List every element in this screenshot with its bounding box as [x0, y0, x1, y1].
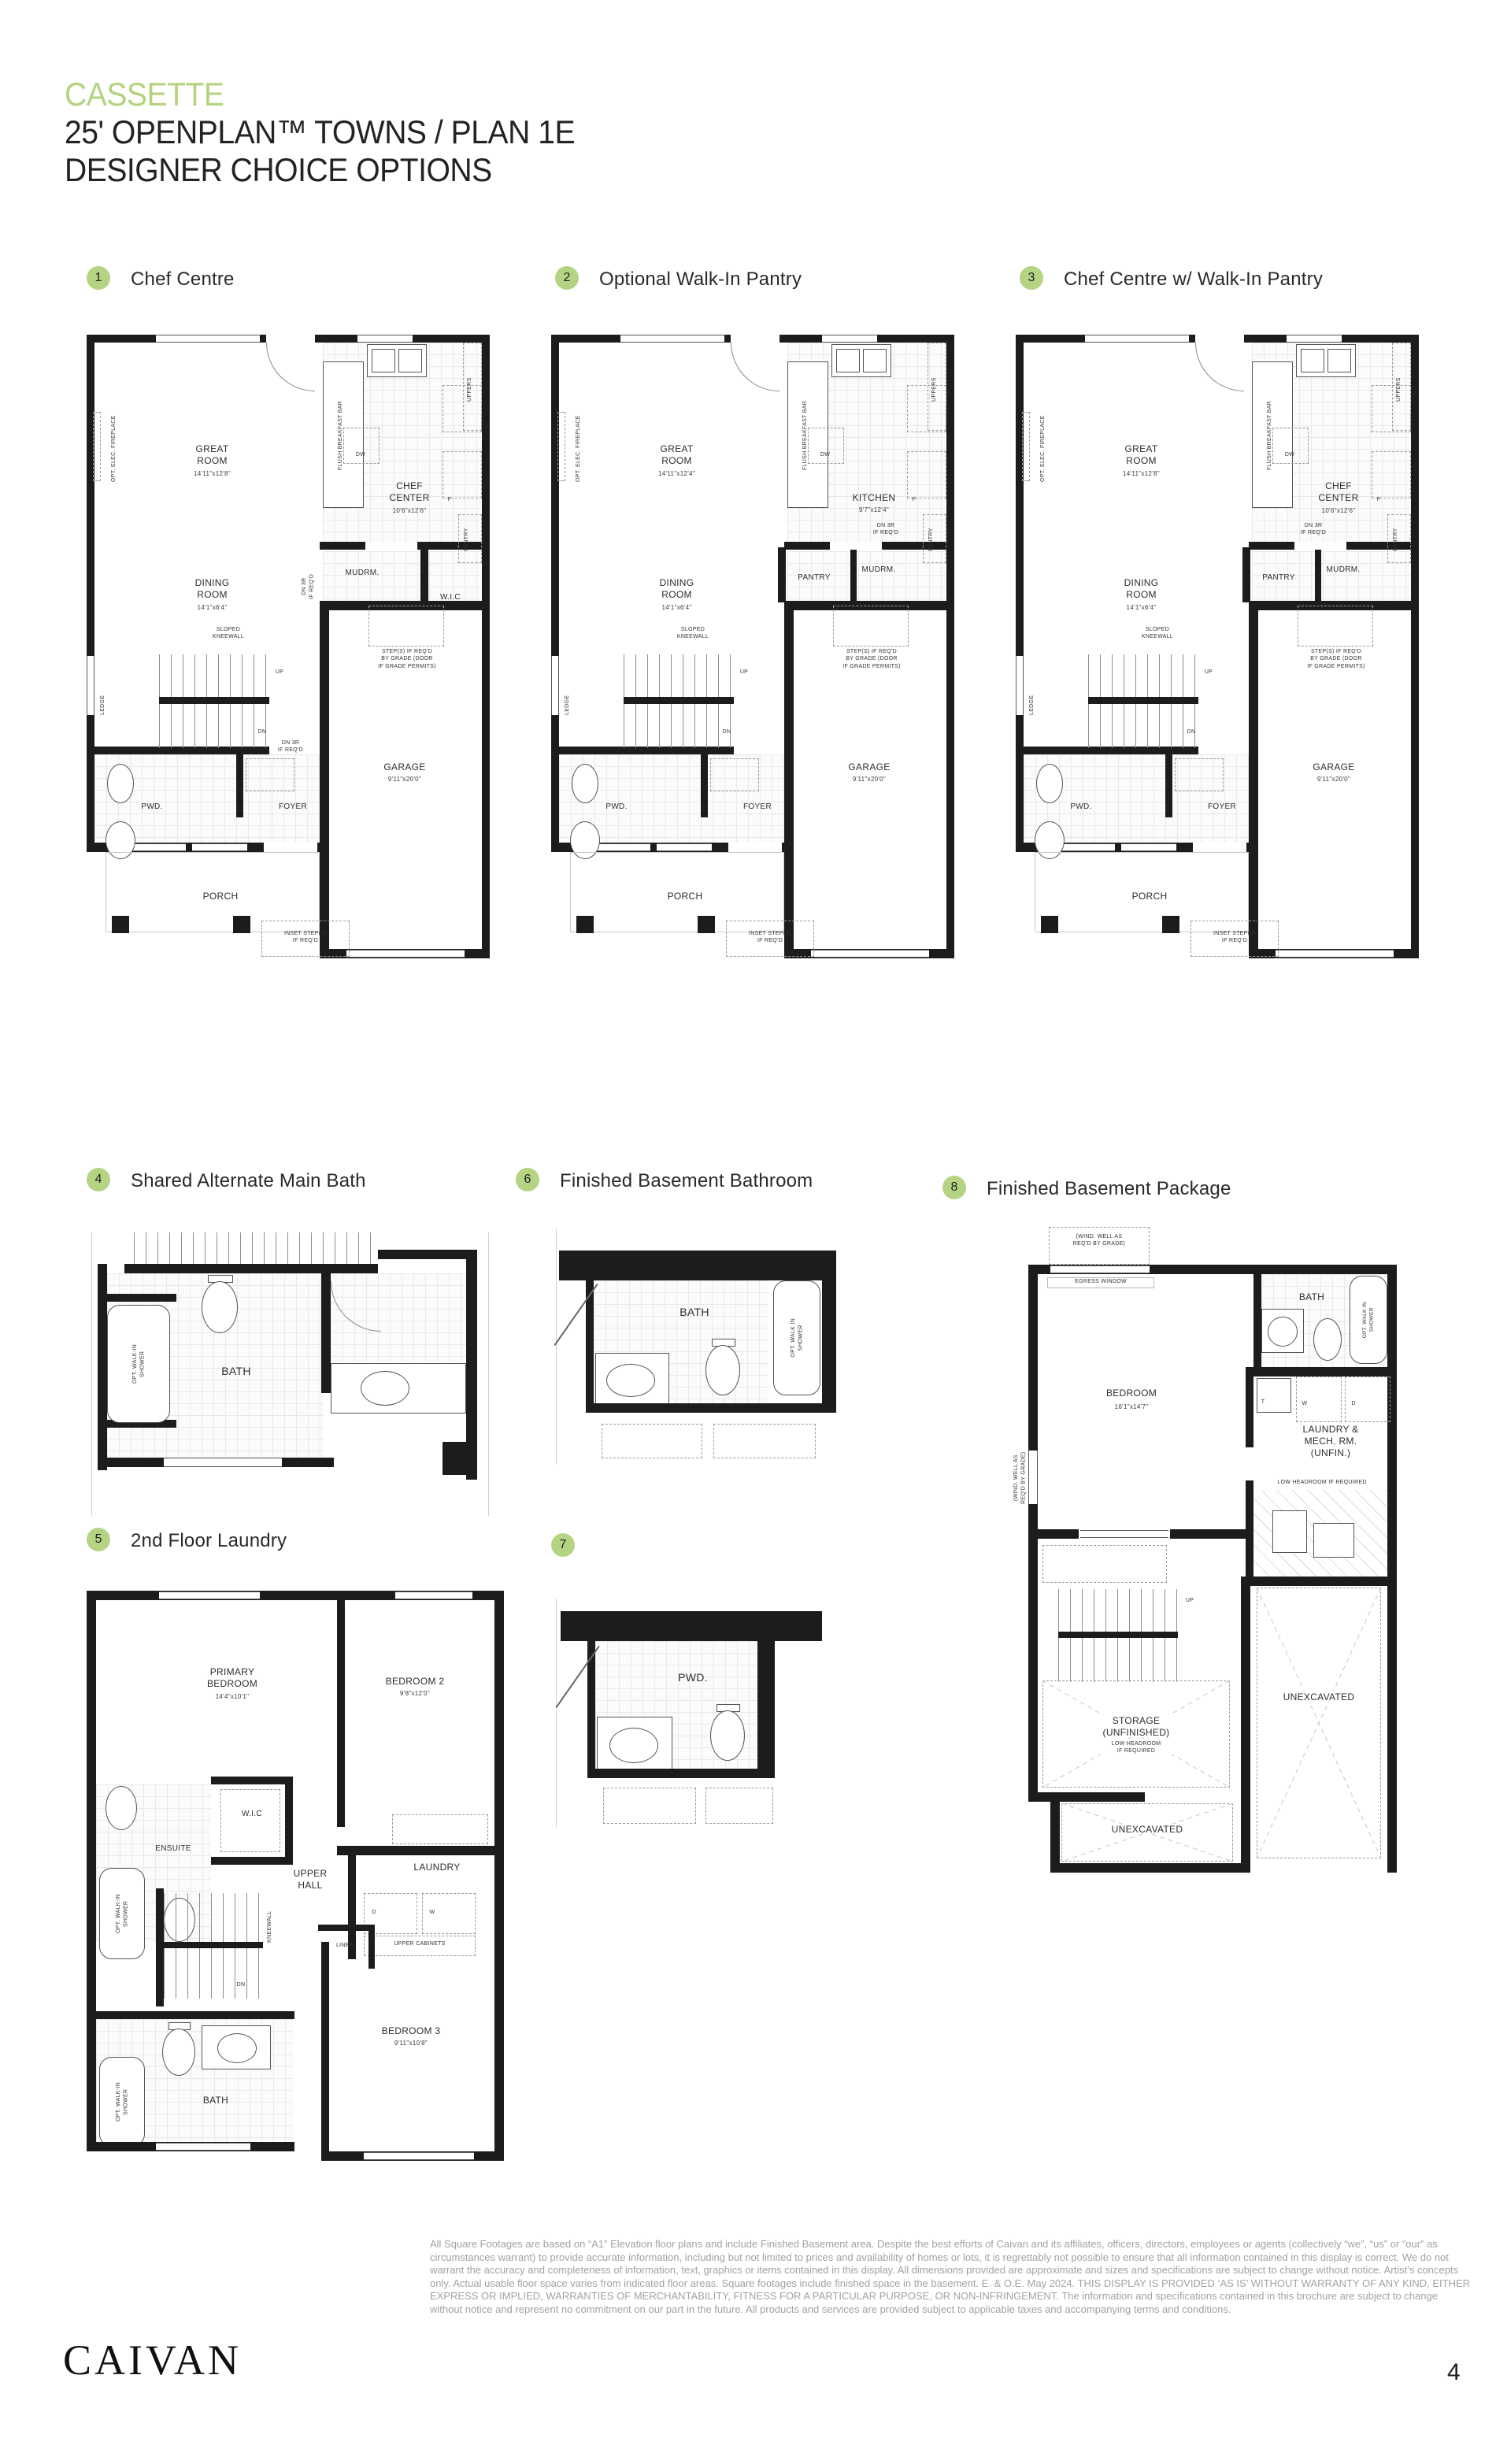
- option-6-number: 6: [524, 1173, 531, 1187]
- toilet-icon: [202, 1281, 238, 1333]
- option-3-label: Chef Centre w/ Walk-In Pantry: [1064, 269, 1323, 291]
- wall: [1165, 754, 1172, 817]
- porch-label: PORCH: [186, 891, 255, 902]
- pantry-room-label: PANTRY: [781, 573, 847, 583]
- upper-hall-label: UPPER HALL: [276, 1868, 345, 1892]
- sink-basin: [1301, 349, 1324, 372]
- garage-dim: 9'11"x20'0": [364, 776, 446, 784]
- dn3r-side-label: DN 3R IF REQ'D: [301, 567, 317, 606]
- option-7-number: 7: [560, 1538, 567, 1552]
- stairs: [134, 1232, 374, 1264]
- wall: [337, 1591, 345, 1827]
- page-subtitle: DESIGNER CHOICE OPTIONS: [65, 151, 492, 189]
- floorplan-basement-package: (WIND. WELL AS REQ'D BY GRADE) EGRESS WI…: [1008, 1221, 1433, 1888]
- sink-icon: [106, 1786, 137, 1830]
- bath-label: BATH: [1282, 1291, 1342, 1302]
- wall: [320, 542, 365, 550]
- toilet-icon: [705, 1345, 740, 1395]
- bedroom2-dim: 9'8"x12'0": [372, 1690, 458, 1698]
- option-2-label: Optional Walk-In Pantry: [599, 269, 802, 291]
- up-label: UP: [737, 669, 751, 676]
- foyer-label: FOYER: [734, 802, 781, 812]
- toilet-icon: [710, 1710, 745, 1761]
- sink-icon: [606, 1364, 655, 1397]
- window: [87, 656, 94, 715]
- shower-label: OPT. WALK IN SHOWER: [1362, 1302, 1376, 1338]
- sink-basin: [836, 349, 860, 372]
- uppers-label: UPPERS: [931, 354, 942, 425]
- stair-landing: [1088, 697, 1198, 704]
- stairs: [159, 704, 269, 748]
- wall: [1246, 1577, 1397, 1586]
- wall: [1246, 1377, 1253, 1447]
- door-opening: [731, 335, 779, 343]
- pantry-cabinet-label: PANTRY: [928, 522, 939, 558]
- stairs: [1058, 1638, 1178, 1682]
- furnace: [1272, 1510, 1307, 1553]
- wic-label: W.I.C: [427, 593, 474, 602]
- dining-room-dim: 14'1"x6'4": [631, 604, 722, 612]
- closet: [392, 1814, 488, 1844]
- garage-door: [811, 950, 929, 958]
- washer-label: W: [1299, 1400, 1310, 1408]
- option-1-badge: 1: [87, 266, 110, 290]
- wall: [1028, 1539, 1038, 1799]
- legal-disclaimer: All Square Footages are based on “A1” El…: [430, 2238, 1471, 2317]
- fireplace: [1022, 412, 1030, 481]
- powder-label: PWD.: [661, 1671, 724, 1685]
- option-4-badge: 4: [87, 1168, 110, 1191]
- dn3r-label: DN 3R IF REQ'D: [860, 522, 912, 536]
- bedroom3-label: BEDROOM 3: [364, 2025, 458, 2036]
- wall: [1050, 1792, 1060, 1873]
- washer-label: W: [427, 1909, 438, 1917]
- window: [822, 335, 877, 343]
- option-2-number: 2: [564, 271, 571, 285]
- window: [395, 1591, 472, 1599]
- porch-post: [112, 916, 129, 933]
- wall: [482, 335, 490, 958]
- dryer-label: D: [368, 1909, 380, 1917]
- door-arc: [731, 343, 779, 391]
- dn-label: DN: [1184, 728, 1198, 736]
- stairs: [164, 1893, 263, 1942]
- wall: [337, 1846, 504, 1855]
- stairs: [624, 654, 734, 697]
- chef-center-dim: 10'6"x12'6": [370, 507, 449, 515]
- stairs: [1088, 654, 1198, 697]
- wall: [946, 335, 954, 958]
- porch-post: [576, 916, 594, 933]
- bath-label: BATH: [663, 1306, 726, 1318]
- dishwasher-label: DW: [1274, 451, 1305, 459]
- wall: [318, 1925, 375, 1931]
- wall: [1241, 1577, 1250, 1873]
- pantry-room-label: PANTRY: [1246, 573, 1312, 583]
- window: [159, 1591, 260, 1599]
- toilet-icon: [572, 764, 598, 803]
- wall: [1249, 542, 1294, 550]
- great-room-dim: 14'11"x12'4": [631, 470, 722, 478]
- egress-window-label: EGRESS WINDOW: [1047, 1277, 1154, 1288]
- fridge: [907, 451, 946, 498]
- sink-basin: [1328, 349, 1351, 372]
- floorplan-chef-centre: FLUSH BREAKFAST BAR DW F UPPERS PANTRY O…: [87, 335, 490, 961]
- bathtub-icon: OPT. WALK IN SHOWER: [773, 1280, 820, 1395]
- window: [1080, 1530, 1168, 1538]
- porch-post: [1041, 916, 1058, 933]
- kitchen-label: KITCHEN: [831, 492, 917, 503]
- fireplace-label: OPT. ELEC. FIREPLACE: [110, 407, 121, 490]
- bedroom-dim: 16'1"x14'7": [1088, 1403, 1175, 1411]
- dn3r-label: DN 3R IF REQ'D: [1287, 522, 1339, 536]
- option-3-badge: 3: [1020, 266, 1043, 290]
- closet: [1042, 1545, 1167, 1583]
- wall: [98, 1294, 176, 1302]
- future-space: [713, 1424, 816, 1458]
- wall: [586, 1403, 830, 1413]
- garage-door: [346, 950, 465, 958]
- closet: [246, 758, 294, 791]
- garage-door: [1276, 950, 1394, 958]
- stair-landing: [164, 1942, 263, 1948]
- garage-label: GARAGE: [364, 761, 446, 773]
- wall: [285, 1784, 293, 1863]
- great-room-label: GREAT ROOM: [631, 443, 722, 469]
- option-8-label: Finished Basement Package: [987, 1178, 1231, 1200]
- steps-area: [368, 606, 444, 647]
- dining-room-dim: 14'1"x6'4": [1096, 604, 1187, 612]
- lot-line: [556, 1599, 557, 1827]
- bedroom2-label: BEDROOM 2: [372, 1676, 458, 1687]
- chef-center-dim: 10'6"x12'6": [1299, 507, 1378, 515]
- dining-room-label: DINING ROOM: [631, 577, 722, 602]
- option-4-number: 4: [95, 1173, 102, 1187]
- wall: [1249, 601, 1258, 958]
- garage-dim: 9'11"x20'0": [828, 776, 910, 784]
- porch-post: [233, 916, 250, 933]
- steps-note: STEP(S) IF REQ'D BY GRADE (DOOR IF GRADE…: [1293, 648, 1379, 669]
- brochure-page: CASSETTE 25' OPENPLAN™ TOWNS / PLAN 1E D…: [0, 0, 1496, 2464]
- floorplan-shared-main-bath: OPT. WALK-IN SHOWER BATH: [87, 1232, 496, 1547]
- great-room-dim: 14'11"x12'8": [167, 470, 257, 478]
- floorplan-basement-bathroom: BATH OPT. WALK IN SHOWER: [551, 1228, 858, 1469]
- chef-center-label: CHEF CENTER: [1299, 480, 1378, 506]
- powder-label: PWD.: [597, 802, 636, 812]
- option-3-number: 3: [1028, 271, 1035, 285]
- wall: [378, 1250, 477, 1259]
- option-1-label: Chef Centre: [131, 269, 235, 291]
- door-arc: [1195, 343, 1244, 391]
- dryer-label: D: [1348, 1400, 1359, 1408]
- kneewall-label: SLOPED KNEEWALL: [187, 626, 269, 640]
- unexcavated-label: UNEXCAVATED: [1087, 1824, 1208, 1833]
- unexcavated-cross: [1257, 1588, 1381, 1858]
- window: [595, 843, 650, 851]
- wall: [1315, 550, 1321, 601]
- fireplace: [93, 412, 101, 481]
- wall: [850, 550, 857, 601]
- inset-steps-label: INSET STEP(S) IF REQ'D: [729, 930, 811, 946]
- bathtub-icon: OPT. WALK-IN SHOWER: [107, 1305, 170, 1423]
- option-6-label: Finished Basement Bathroom: [560, 1170, 813, 1192]
- kneewall-label: SLOPED KNEEWALL: [652, 626, 734, 640]
- window: [156, 2143, 250, 2151]
- wall: [1387, 1265, 1397, 1873]
- stair-landing: [624, 697, 734, 704]
- door-arc: [266, 343, 315, 391]
- door-opening: [266, 335, 315, 343]
- primary-bedroom-dim: 14'4"x10'1": [189, 1693, 276, 1701]
- steps-note: STEP(S) IF REQ'D BY GRADE (DOOR IF GRADE…: [364, 648, 450, 669]
- dn-label: DN: [720, 728, 734, 736]
- option-1-number: 1: [95, 271, 102, 285]
- wic-shelving: [220, 1789, 280, 1852]
- lot-line: [488, 1232, 489, 1516]
- shower-label: OPT. WALK-IN SHOWER: [115, 1894, 130, 1933]
- fireplace-label: OPT. ELEC. FIREPLACE: [575, 407, 586, 490]
- floorplan-chef-centre-pantry: FLUSH BREAKFAST BAR DW F UPPERS PANTRY O…: [1016, 335, 1419, 961]
- mudroom-label: MUDRM.: [1318, 565, 1368, 575]
- stairs: [1088, 704, 1198, 748]
- storage-label: STORAGE (UNFINISHED): [1076, 1715, 1197, 1737]
- porch-post: [698, 916, 715, 933]
- window: [1016, 656, 1024, 715]
- wall: [124, 1264, 378, 1273]
- window: [1287, 335, 1342, 343]
- floorplan-basement-powder: PWD.: [551, 1599, 858, 1831]
- stairs: [159, 654, 269, 697]
- wall: [1170, 1529, 1253, 1539]
- wall: [368, 1925, 375, 1969]
- bath-label: BATH: [183, 2095, 249, 2106]
- wall: [1028, 1529, 1079, 1539]
- wall: [211, 1857, 293, 1865]
- porch-post: [1162, 916, 1179, 933]
- wall: [494, 1591, 504, 2161]
- option-7-badge: 7: [551, 1533, 575, 1557]
- brand-title: CASSETTE: [65, 76, 224, 113]
- pantry-cabinet-label: PANTRY: [1392, 522, 1403, 558]
- wall: [156, 1888, 164, 2006]
- fireplace-label: OPT. ELEC. FIREPLACE: [1039, 407, 1050, 490]
- stairs: [1058, 1589, 1178, 1632]
- tub-label: T: [1258, 1399, 1268, 1406]
- ledge-label: LEDGE: [99, 687, 109, 723]
- steps-area: [1298, 606, 1373, 647]
- lot-line: [556, 1228, 557, 1465]
- sink-basin: [863, 349, 887, 372]
- wic-label: W.I.C: [219, 1810, 285, 1819]
- future-space: [603, 1788, 696, 1824]
- wall: [236, 754, 243, 817]
- kneewall-label: SLOPED KNEEWALL: [1116, 626, 1198, 640]
- ledge-label: LEDGE: [1028, 687, 1038, 723]
- option-6-badge: 6: [516, 1168, 539, 1191]
- window: [131, 843, 186, 851]
- page-number: 4: [1447, 2359, 1461, 2386]
- shower-label: OPT. WALK-IN SHOWER: [131, 1344, 146, 1384]
- window: [364, 2152, 474, 2160]
- uppers-label: UPPERS: [1395, 354, 1406, 425]
- laundry-label: LAUNDRY: [394, 1862, 480, 1873]
- sink-basin: [398, 349, 422, 372]
- stair-landing: [1058, 1632, 1178, 1638]
- window: [1060, 843, 1115, 851]
- future-space: [602, 1424, 702, 1458]
- wall: [784, 601, 794, 958]
- entry-door-opening: [728, 843, 782, 852]
- stairs: [164, 1948, 263, 1999]
- page-title: 25' OPENPLAN™ TOWNS / PLAN 1E: [65, 113, 575, 151]
- dishwasher-label: DW: [809, 451, 841, 459]
- stair-landing: [159, 697, 269, 704]
- washer: [1296, 1377, 1342, 1422]
- mudroom-label: MUDRM.: [854, 565, 904, 575]
- kitchen-dim: 9'7"x12'4": [831, 506, 917, 514]
- primary-bedroom-label: PRIMARY BEDROOM: [189, 1666, 276, 1690]
- great-room-dim: 14'11"x12'8": [1096, 470, 1187, 478]
- caivan-logo: CAIVAN: [63, 2336, 242, 2384]
- window: [620, 335, 724, 343]
- hot-water-tank: [1313, 1523, 1354, 1558]
- laundry-mech-label: LAUNDRY & MECH. RM. (UNFIN.): [1277, 1424, 1384, 1458]
- floorplan-2nd-floor-laundry: OPT. WALK-IN SHOWER ENSUITE W.I.C UPPER …: [87, 1591, 504, 2169]
- wall: [321, 1273, 331, 1393]
- unexcavated-label: UNEXCAVATED: [1258, 1691, 1379, 1701]
- window: [357, 335, 413, 343]
- closet: [710, 758, 759, 791]
- window: [1028, 1451, 1038, 1504]
- option-8-badge: 8: [942, 1176, 966, 1199]
- dn-label: DN: [233, 1981, 249, 1989]
- option-4-label: Shared Alternate Main Bath: [131, 1170, 366, 1192]
- wall: [1028, 1792, 1145, 1802]
- steps-note: STEP(S) IF REQ'D BY GRADE (DOOR IF GRADE…: [828, 648, 915, 669]
- wall: [784, 542, 830, 550]
- entry-door-opening: [1193, 843, 1246, 852]
- sink-basin: [372, 349, 395, 372]
- toilet-icon: [162, 2029, 195, 2076]
- window: [164, 1458, 282, 1467]
- dishwasher-label: DW: [345, 451, 376, 459]
- window: [551, 656, 559, 715]
- window: [1121, 843, 1176, 851]
- wall: [321, 1942, 329, 2153]
- wall: [559, 1251, 828, 1280]
- option-2-badge: 2: [555, 266, 579, 290]
- sink-icon: [217, 2033, 257, 2063]
- sink-icon: [609, 1728, 658, 1763]
- storage-sub-label: LOW HEADROOM IF REQUIRED: [1083, 1740, 1189, 1754]
- wall: [1253, 1274, 1261, 1370]
- window: [1085, 335, 1189, 343]
- uppers-label: UPPERS: [466, 354, 477, 425]
- dining-room-label: DINING ROOM: [1096, 577, 1187, 602]
- inset-steps-label: INSET STEP(S) IF REQ'D: [265, 930, 346, 946]
- wall: [822, 1251, 836, 1413]
- bedroom-label: BEDROOM: [1088, 1388, 1175, 1400]
- sink-icon: [1268, 1317, 1298, 1347]
- wall: [587, 1769, 775, 1778]
- wall: [1246, 1367, 1397, 1377]
- stairs: [624, 704, 734, 748]
- sink-icon: [361, 1371, 409, 1406]
- bathtub-icon: OPT. WALK-IN SHOWER: [99, 2057, 145, 2147]
- garage-dim: 9'11"x20'0": [1293, 776, 1375, 784]
- powder-label: PWD.: [132, 802, 172, 812]
- mudroom-label: MUDRM.: [337, 569, 387, 578]
- ledge-label: LEDGE: [564, 687, 573, 723]
- bathtub-icon: OPT. WALK IN SHOWER: [1350, 1276, 1387, 1364]
- powder-label: PWD.: [1061, 802, 1101, 812]
- floorplan-walkin-pantry: FLUSH BREAKFAST BAR DW F UPPERS PANTRY O…: [551, 335, 954, 961]
- foyer-label: FOYER: [1198, 802, 1246, 812]
- steps-area: [833, 606, 909, 647]
- great-room-label: GREAT ROOM: [1096, 443, 1187, 469]
- garage-label: GARAGE: [1293, 761, 1375, 773]
- wall: [757, 1641, 775, 1778]
- wall: [1050, 1863, 1250, 1873]
- bathtub-icon: OPT. WALK-IN SHOWER: [99, 1868, 145, 1959]
- wall: [586, 1280, 594, 1411]
- door-opening: [1195, 335, 1244, 343]
- dn3r-label: DN 3R IF REQ'D: [265, 739, 317, 754]
- up-label: UP: [1183, 1597, 1197, 1605]
- entry-door-opening: [264, 843, 317, 852]
- bath-label: BATH: [197, 1365, 276, 1377]
- toilet-icon: [1036, 764, 1063, 803]
- dining-room-label: DINING ROOM: [167, 577, 257, 602]
- wall: [96, 2011, 294, 2019]
- wall: [87, 1591, 96, 2151]
- lot-line: [91, 1232, 92, 1516]
- up-label: UP: [272, 669, 287, 676]
- fireplace: [557, 412, 565, 481]
- kneewall-label: KNEEWALL: [266, 1903, 276, 1951]
- future-space: [705, 1788, 773, 1824]
- dryer: [1345, 1377, 1390, 1422]
- chef-center-label: CHEF CENTER: [370, 480, 449, 506]
- dn-label: DN: [255, 728, 269, 736]
- window: [657, 843, 712, 851]
- inset-steps-label: INSET STEP(S) IF REQ'D: [1194, 930, 1276, 946]
- laundry-tub: [1257, 1378, 1291, 1413]
- wall: [561, 1611, 822, 1641]
- bedroom3-dim: 9'11"x10'8": [364, 2040, 458, 2047]
- wall: [211, 1777, 293, 1784]
- low-headroom-label: LOW HEADROOM IF REQUIRED: [1258, 1479, 1386, 1487]
- wall: [1411, 335, 1419, 958]
- dining-room-dim: 14'1"x6'4": [167, 604, 257, 612]
- closet: [1175, 758, 1224, 791]
- window-well-left-label: (WIND. WELL AS REQ'D BY GRADE): [1013, 1432, 1027, 1525]
- option-8-number: 8: [951, 1180, 958, 1195]
- toilet-icon: [107, 764, 134, 803]
- ensuite-label: ENSUITE: [135, 1844, 211, 1855]
- wall: [443, 1442, 477, 1475]
- wall: [701, 754, 708, 817]
- toilet-icon: [1313, 1318, 1342, 1361]
- window: [156, 335, 260, 343]
- shower-label: OPT. WALK IN SHOWER: [790, 1318, 805, 1358]
- garage-label: GARAGE: [828, 761, 910, 773]
- window-well-label: (WIND. WELL AS REQ'D BY GRADE): [1053, 1233, 1145, 1252]
- porch-label: PORCH: [1115, 891, 1184, 902]
- great-room-label: GREAT ROOM: [167, 443, 257, 469]
- upper-cabinets-label: UPPER CABINETS: [370, 1940, 469, 1950]
- porch-label: PORCH: [650, 891, 720, 902]
